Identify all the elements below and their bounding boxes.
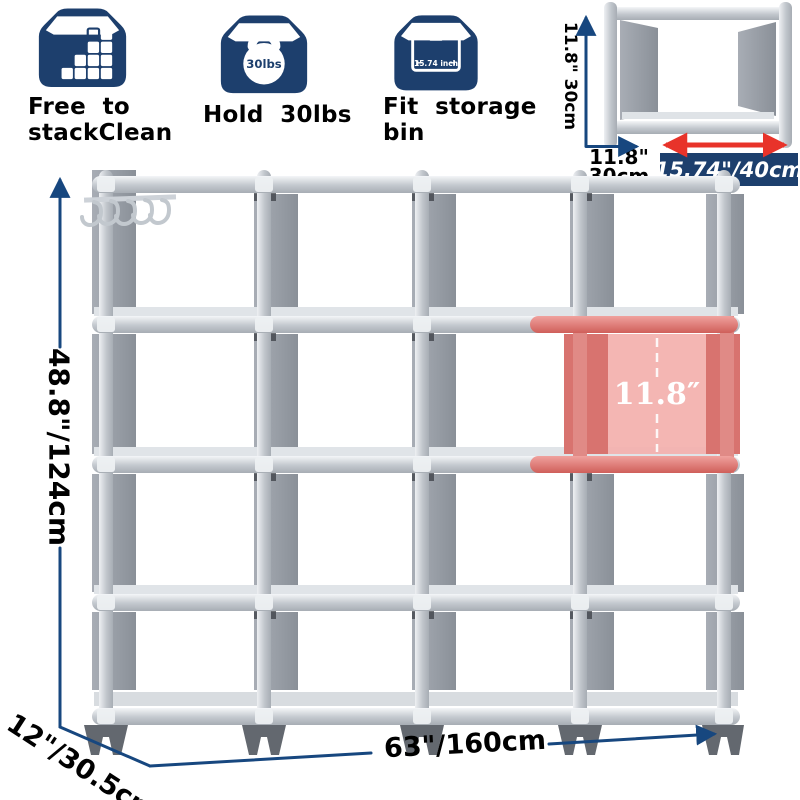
mini-height-label: 11.8" 30cm [560,22,580,130]
cube-right-post [779,2,792,148]
storage-bin-icon: 15.74 inch [386,12,486,97]
cube-height-callout: 11.8″ [614,377,700,412]
kettlebell-icon: 30lbs [212,12,316,100]
single-cube-diagram [598,0,798,152]
cube-bottom-rail [604,121,792,134]
height-dimension-label: 48.8"/124cm [43,348,76,546]
kettlebell-weight-label: 30lbs [246,57,281,71]
cube-shelf-illustration: 11.8″ [72,160,744,760]
cube-top-rail [604,7,792,20]
feature-label-hold: Hold 30lbs [203,103,352,129]
cube-right-panel [738,22,776,116]
stackable-cubes-icon [30,5,135,94]
feature-label-stack: Free tostackClean [28,95,172,147]
cube-shelf-board [622,112,774,119]
product-diagram-page: Free tostackClean 30lbs Hold 30lbs 15.74… [0,0,800,800]
bin-handle-slot [429,37,442,41]
cube-left-panel [620,20,658,120]
cube-left-post [604,2,617,148]
bin-size-label: 15.74 inch [414,59,458,68]
feature-label-bin: Fit storagebin [383,95,537,147]
